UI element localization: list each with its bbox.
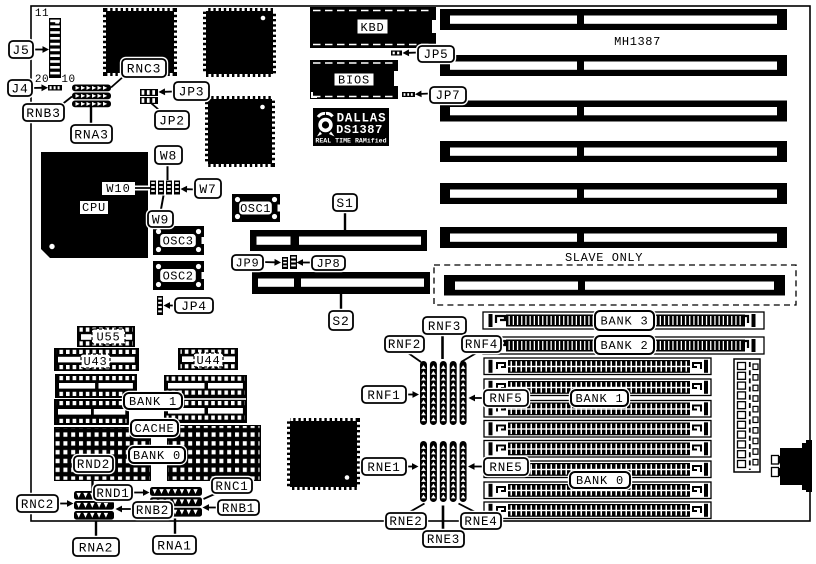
svg-text:CACHE: CACHE bbox=[134, 422, 174, 436]
svg-text:OSC3: OSC3 bbox=[163, 235, 194, 249]
svg-text:S1: S1 bbox=[336, 196, 353, 211]
svg-text:RNC1: RNC1 bbox=[215, 480, 248, 494]
svg-text:JP4: JP4 bbox=[181, 299, 207, 314]
svg-text:BIOS: BIOS bbox=[338, 74, 370, 88]
svg-text:SLAVE ONLY: SLAVE ONLY bbox=[565, 251, 643, 265]
svg-text:RNA3: RNA3 bbox=[74, 127, 108, 142]
svg-text:REAL TIME RAMified: REAL TIME RAMified bbox=[315, 138, 386, 145]
svg-text:JP2: JP2 bbox=[159, 113, 185, 128]
svg-text:RNF5: RNF5 bbox=[489, 392, 522, 406]
svg-text:U55: U55 bbox=[96, 330, 120, 344]
svg-text:BANK 2: BANK 2 bbox=[600, 339, 648, 353]
svg-text:CPU: CPU bbox=[82, 201, 106, 215]
svg-text:RNF3: RNF3 bbox=[428, 320, 461, 334]
svg-text:RNE4: RNE4 bbox=[464, 515, 497, 529]
svg-text:RNB3: RNB3 bbox=[26, 106, 60, 121]
svg-text:RND2: RND2 bbox=[77, 458, 110, 472]
svg-text:JP3: JP3 bbox=[179, 84, 205, 99]
svg-text:MH1387: MH1387 bbox=[614, 35, 661, 49]
svg-text:RNC3: RNC3 bbox=[127, 61, 161, 76]
svg-text:U43: U43 bbox=[83, 355, 107, 369]
svg-text:JP9: JP9 bbox=[235, 257, 259, 271]
svg-text:JP8: JP8 bbox=[316, 257, 340, 271]
svg-text:20: 20 bbox=[35, 74, 49, 86]
svg-text:BANK 0: BANK 0 bbox=[576, 474, 624, 488]
svg-text:BANK 0: BANK 0 bbox=[133, 449, 181, 463]
svg-text:W9: W9 bbox=[152, 212, 169, 227]
svg-text:BANK 1: BANK 1 bbox=[575, 392, 623, 406]
svg-text:J4: J4 bbox=[11, 81, 28, 96]
svg-text:BANK 3: BANK 3 bbox=[600, 315, 648, 329]
svg-text:RNF1: RNF1 bbox=[367, 389, 400, 403]
svg-text:11: 11 bbox=[35, 8, 49, 20]
svg-text:J5: J5 bbox=[12, 43, 29, 58]
svg-text:BANK 1: BANK 1 bbox=[129, 395, 177, 409]
svg-text:U44: U44 bbox=[196, 354, 220, 368]
svg-text:W8: W8 bbox=[160, 148, 177, 163]
svg-text:RNA2: RNA2 bbox=[79, 540, 113, 555]
svg-text:RNF2: RNF2 bbox=[388, 338, 421, 352]
svg-text:JP7: JP7 bbox=[436, 89, 461, 103]
svg-text:RNF4: RNF4 bbox=[465, 338, 498, 352]
svg-text:RNC2: RNC2 bbox=[21, 498, 54, 512]
svg-text:RNE1: RNE1 bbox=[367, 461, 400, 475]
svg-text:RNB2: RNB2 bbox=[136, 504, 169, 518]
svg-text:RNE5: RNE5 bbox=[489, 461, 522, 475]
svg-text:RND1: RND1 bbox=[96, 487, 129, 501]
svg-text:OSC2: OSC2 bbox=[163, 270, 194, 284]
svg-text:W7: W7 bbox=[199, 182, 216, 197]
svg-text:OSC1: OSC1 bbox=[240, 202, 271, 216]
svg-text:JP5: JP5 bbox=[424, 48, 449, 62]
svg-text:KBD: KBD bbox=[360, 21, 384, 35]
svg-text:W10: W10 bbox=[106, 182, 131, 196]
svg-text:RNE3: RNE3 bbox=[427, 533, 460, 547]
svg-text:RNB1: RNB1 bbox=[222, 502, 255, 516]
svg-text:10: 10 bbox=[61, 74, 75, 86]
svg-text:S2: S2 bbox=[332, 314, 349, 329]
svg-text:RNA1: RNA1 bbox=[157, 538, 191, 553]
svg-text:RNE2: RNE2 bbox=[389, 515, 422, 529]
svg-text:DS1387: DS1387 bbox=[336, 123, 383, 137]
